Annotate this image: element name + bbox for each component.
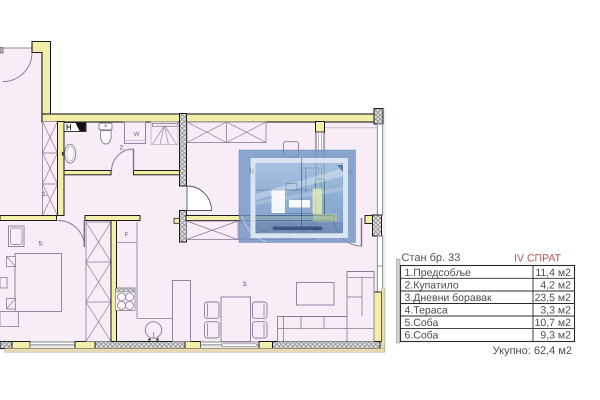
svg-text:1.: 1. (42, 191, 48, 198)
svg-text:5.: 5. (39, 241, 45, 248)
svg-text:2.: 2. (120, 145, 126, 152)
svg-text:11,4 м2: 11,4 м2 (535, 267, 571, 279)
svg-text:10,7 м2: 10,7 м2 (535, 317, 572, 329)
svg-text:5.Соба: 5.Соба (405, 317, 439, 329)
svg-text:3.Дневни боравак: 3.Дневни боравак (405, 292, 492, 304)
svg-text:6.Соба: 6.Соба (405, 330, 439, 342)
svg-text:4,2 м2: 4,2 м2 (540, 279, 571, 291)
svg-text:Стан бр. 33: Стан бр. 33 (402, 252, 461, 264)
svg-text:4.Тераса: 4.Тераса (405, 304, 448, 316)
svg-text:IV СПРАТ: IV СПРАТ (514, 253, 561, 265)
svg-text:23,5 м2: 23,5 м2 (535, 292, 572, 304)
svg-text:1.Предсобље: 1.Предсобље (405, 267, 472, 279)
svg-text:3,3 м2: 3,3 м2 (540, 304, 571, 316)
svg-text:2.Купатило: 2.Купатило (405, 279, 459, 291)
svg-text:W: W (134, 131, 140, 138)
svg-text:9,3 м2: 9,3 м2 (540, 330, 571, 342)
svg-text:Укупно: 62,4 м2: Укупно: 62,4 м2 (493, 345, 572, 357)
svg-text:F: F (125, 232, 129, 239)
svg-text:3.: 3. (243, 281, 249, 288)
